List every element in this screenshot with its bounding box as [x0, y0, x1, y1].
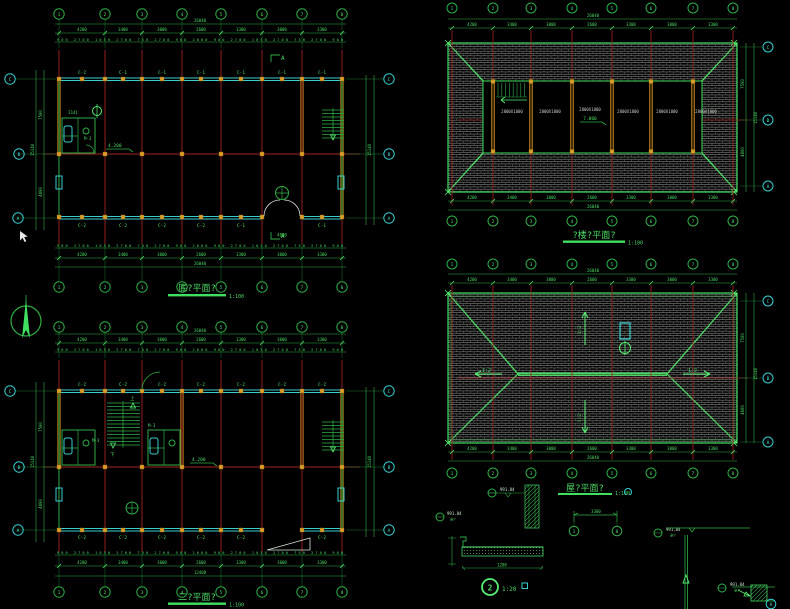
grid-bubble: 6 [650, 262, 653, 268]
grid-bubble: 3 [141, 325, 144, 331]
row-bubble: B [388, 465, 391, 471]
elevation-value: 991.84 [447, 511, 462, 516]
dim-bay: 2600 [587, 277, 597, 282]
window-label: C-2 [78, 535, 86, 541]
dim-v-overall: 15140 [30, 455, 35, 468]
grid-bubble: 5 [611, 6, 614, 12]
dim-sub-row: 900 2700 1050 2700 750 2700 900 2600 900… [57, 38, 343, 42]
grid-bubble: 1 [451, 262, 454, 268]
dim-sub-row: 900 2700 1050 2700 750 2700 900 2600 900… [57, 348, 343, 352]
grid-bubble: 5 [611, 471, 614, 477]
section-mark: A [281, 233, 285, 240]
dimension-lines [36, 24, 374, 267]
dim-bay: 3300 [708, 195, 718, 200]
key-elevation: 3300 1 8 [569, 509, 622, 536]
grid-bubble: 7 [692, 471, 695, 477]
window-label: C-2 [197, 535, 205, 541]
dim-overall-top: 26040 [587, 13, 600, 18]
dim-bay: 3300 [626, 446, 636, 451]
corner-detail: 991.84 全? A [718, 582, 776, 609]
row-bubble: B [767, 376, 770, 382]
dim-bay: 3300 [626, 195, 636, 200]
stair-up: 上 [130, 395, 135, 402]
window-label: C-1 [278, 70, 286, 76]
dim-bay: 3000 [277, 27, 287, 32]
level-text: 4.200 [108, 143, 122, 149]
grid-bubble: 4 [181, 325, 184, 331]
dim-bay: 3300 [236, 27, 246, 32]
dim-bay: 3300 [317, 337, 327, 342]
dim-bay: 2600 [587, 446, 597, 451]
dim-v-overall: 15140 [753, 111, 758, 124]
second-floor-plan: 26040 4200 3400 3000 2600 3300 3000 3300… [0, 310, 400, 609]
right-detail: 991.84 全? [654, 527, 750, 609]
grid-bubble: 7 [301, 590, 304, 596]
dim-bay: 3300 [236, 560, 246, 565]
plan-title: ?楼?平面? 1:100 [563, 229, 643, 247]
grid-bubble: 6 [261, 12, 264, 18]
window-labels: C-2 C-1 C-1 C-1 C-1 C-1 C-1 C-2 C-2 C-2 … [78, 70, 326, 229]
dim-bay: 3300 [708, 277, 718, 282]
grid-bubble: 5 [220, 325, 223, 331]
elevation-value: 991.84 [730, 582, 745, 587]
grid-bubble: 7 [301, 12, 304, 18]
room-label: 2800X1800 [501, 109, 523, 114]
grid-bubble: 4 [571, 262, 574, 268]
plan-scale: 1:100 [229, 603, 244, 609]
room-label: 2800X1800 [617, 109, 639, 114]
dim-bay: 3000 [546, 22, 556, 27]
dim-bay: 3000 [157, 252, 167, 257]
dim-bay: 3000 [546, 195, 556, 200]
walls [56, 77, 344, 219]
window-label: C-2 [318, 535, 326, 541]
dim-bay: 3300 [236, 252, 246, 257]
dim-bay: 3300 [708, 22, 718, 27]
dim-v-overall: 15140 [367, 455, 372, 468]
row-bubble: B [18, 152, 21, 158]
window-label: C-2 [197, 382, 205, 388]
dim-sub-row: 900 2700 1050 2700 750 2700 900 2600 900… [57, 244, 343, 248]
dim-overall-bottom: 26040 [587, 204, 600, 209]
dim-bay: 3400 [507, 277, 517, 282]
window-label: C-2 [237, 382, 245, 388]
dim-v-row: 4800 [740, 405, 745, 415]
dim-bay: 2600 [196, 560, 206, 565]
grid-bubble: 2 [492, 471, 495, 477]
dim-overall-top: 26040 [587, 268, 600, 273]
dim-v-overall: 15140 [30, 143, 35, 156]
dim-bay: 2600 [587, 195, 597, 200]
window-label: C-2 [78, 223, 86, 229]
grid-bubble: 8 [732, 262, 735, 268]
dim-bay: 3400 [118, 337, 128, 342]
cad-canvas: 26040 4200 3400 3000 2600 3300 3000 3300… [0, 0, 790, 609]
window-label: C-2 [119, 382, 127, 388]
dim-v-row: 4800 [38, 499, 43, 509]
grid-bubble: 5 [220, 285, 223, 291]
room-label: 2800X1800 [539, 109, 561, 114]
grid-bubble: 6 [261, 285, 264, 291]
slope-label: 1:2 [577, 414, 583, 422]
grid-bubble: 8 [341, 590, 344, 596]
dim-overall-bottom: 26040 [587, 455, 600, 460]
grid-bubble: 6 [261, 590, 264, 596]
grid-bubble: 5 [611, 219, 614, 225]
dim-v-row: 4800 [38, 187, 43, 197]
compass-needle [22, 299, 30, 338]
door-label: M-3 [92, 438, 100, 443]
window-label: C-1 [119, 70, 127, 76]
dim-bay: 3000 [667, 22, 677, 27]
window-label: C-1 [197, 70, 205, 76]
dim-bay: 3000 [277, 252, 287, 257]
dim-bay: 3000 [277, 560, 287, 565]
dim-bay: 4200 [77, 252, 87, 257]
grid-bubble: 1 [451, 471, 454, 477]
dim-overall-top: 26040 [194, 328, 207, 333]
grid-bubble: 1 [58, 590, 61, 596]
dim-bay: 4200 [77, 560, 87, 565]
room-label: 2800X1800 [695, 109, 717, 114]
dim-v-row: 7500 [38, 110, 43, 120]
grid-bubble: 6 [650, 219, 653, 225]
dim-overall-bottom: 12408 [194, 570, 207, 575]
plan-title-text: ?楼?平面? [572, 229, 615, 241]
dim-bay: 3000 [667, 195, 677, 200]
dim-bay: 3300 [626, 277, 636, 282]
row-bubble: C [388, 389, 391, 395]
key-dim: 3300 [591, 509, 601, 514]
grid-bubble: 6 [261, 325, 264, 331]
window-label: C-2 [119, 535, 127, 541]
grid-bubble: 5 [611, 262, 614, 268]
grid-bubble: 4 [571, 6, 574, 12]
grid-bubble: 1 [58, 325, 61, 331]
grid-bubble: 3 [530, 471, 533, 477]
grid-bubble: 4 [181, 12, 184, 18]
dim-bay: 3400 [507, 22, 517, 27]
grid-bubble: 4 [571, 471, 574, 477]
mouse-cursor [20, 231, 28, 242]
grid-bubble: 8 [341, 325, 344, 331]
row-bubble: B [388, 152, 391, 158]
dim-bay: 3000 [546, 277, 556, 282]
dim-bay: 3400 [118, 27, 128, 32]
row-bubble: A [388, 216, 391, 222]
detail-drawings: 991.84 991.84 全? 1200 2 1:20 3300 1 8 99… [430, 480, 790, 609]
dim-bay: 3000 [157, 27, 167, 32]
dim-v-row: 7500 [38, 422, 43, 432]
plan-title: 二?平面? 1:100 [168, 592, 244, 609]
window-label: C-2 [78, 70, 86, 76]
north-arrow [2, 293, 52, 353]
dim-bay: 3000 [667, 446, 677, 451]
grid-bubble: 6 [650, 471, 653, 477]
window-label: C-2 [197, 223, 205, 229]
plan-title-text: 二?平面? [178, 592, 216, 603]
row-bubble: C [767, 45, 770, 51]
slope-label: 1:2 [688, 368, 697, 374]
window-label: C-2 [119, 223, 127, 229]
window-label: C-2 [78, 382, 86, 388]
eave-detail: 991.84 991.84 全? 1200 2 1:20 [436, 485, 543, 595]
grid-bubble: 6 [650, 6, 653, 12]
row-bubble: A [767, 440, 770, 446]
grid-bubble: 8 [732, 219, 735, 225]
grid-lines [16, 19, 383, 281]
grid-bubble: 2 [104, 12, 107, 18]
grid-bubble: 1 [451, 219, 454, 225]
elevation-value: 991.84 [500, 487, 515, 492]
key-bubble: 1 [573, 529, 576, 535]
grid-bubble: 3 [141, 285, 144, 291]
plan-title-text: 底?平面? [178, 282, 216, 294]
row-bubble: A [17, 216, 20, 222]
grid-bubble: 3 [530, 262, 533, 268]
dim-overall-bottom: 26040 [194, 261, 207, 266]
grid-bubble: 8 [732, 471, 735, 477]
grid-bubble: 2 [492, 6, 495, 12]
grid-bubble: 7 [692, 219, 695, 225]
door-label: M-3 [84, 136, 92, 141]
dim-bay: 3000 [157, 337, 167, 342]
block-icon [522, 583, 528, 589]
dim-bay: 3300 [236, 337, 246, 342]
plan-scale: 1:100 [229, 294, 244, 300]
dim-bay: 4200 [77, 337, 87, 342]
dim-bay: 4200 [77, 27, 87, 32]
elevation-note: 全? [734, 588, 740, 593]
grid-bubble: 2 [492, 219, 495, 225]
grid-bubble: 7 [301, 325, 304, 331]
window-label: C-2 [158, 223, 166, 229]
grid-bubble: 1 [58, 285, 61, 291]
dim-bay: 2600 [196, 252, 206, 257]
dim-bay: 2600 [196, 337, 206, 342]
grid-bubble: 7 [692, 6, 695, 12]
row-bubble: B [767, 118, 770, 124]
window-label: C-2 [158, 535, 166, 541]
dim-bay: 3000 [667, 277, 677, 282]
dim-bay: 4200 [467, 22, 477, 27]
row-bubble: A [17, 528, 20, 534]
window-label: C-2 [318, 382, 326, 388]
grid-bubble: 3 [530, 6, 533, 12]
dim-bay: 4200 [467, 446, 477, 451]
grid-bubble: 7 [301, 285, 304, 291]
dim-bay: 3000 [546, 446, 556, 451]
detail-bubble-number: 2 [488, 584, 493, 593]
dim-v-row: 7500 [740, 333, 745, 343]
grid-bubble: 8 [732, 6, 735, 12]
dim-v-overall: 15140 [367, 143, 372, 156]
dim-bay: 3400 [118, 560, 128, 565]
plan-title: 底?平面? 1:100 [168, 282, 244, 300]
ground-floor-plan: 26040 4200 3400 3000 2600 3300 3000 3300… [0, 0, 400, 310]
room-label: 2800X1800 [579, 107, 601, 112]
bath-dim: 2141 [68, 110, 78, 115]
dim-bay: 4200 [467, 277, 477, 282]
grid-bubble: 4 [571, 219, 574, 225]
row-bubble: B [18, 465, 21, 471]
room-label: 2800X1800 [656, 109, 678, 114]
grid-bubble: 5 [220, 12, 223, 18]
grid-bubble: 2 [492, 262, 495, 268]
dim-bay: 3300 [626, 22, 636, 27]
grid-bubble: 7 [692, 262, 695, 268]
row-bubble: A [388, 528, 391, 534]
key-bubble: 8 [616, 529, 619, 535]
window-label: C-2 [278, 382, 286, 388]
row-bubble: C [388, 77, 391, 83]
row-bubble: C [9, 77, 12, 83]
level-text: 7.000 [583, 116, 597, 122]
detail-dim: 1200 [497, 563, 507, 568]
grid-bubble: 2 [104, 590, 107, 596]
attic-rooms: 2800X1800 2800X1800 2800X1800 2800X1800 … [483, 80, 717, 154]
slope-label: 1:2 [482, 368, 491, 374]
grid-bubble: 8 [341, 12, 344, 18]
level-text: 4.200 [192, 457, 206, 463]
dim-bay: 3300 [317, 560, 327, 565]
stair-down: 下 [110, 452, 115, 458]
window-label: C-1 [318, 223, 326, 229]
window-label: C-2 [237, 535, 245, 541]
row-bubble: C [9, 389, 12, 395]
dim-bay: 3400 [118, 252, 128, 257]
grid-bubble: 8 [341, 285, 344, 291]
grid-bubble: 3 [530, 219, 533, 225]
grid-bubble: 5 [220, 590, 223, 596]
dim-bay: 3400 [507, 446, 517, 451]
attic-plan: 2800X1800 2800X1800 2800X1800 2800X1800 … [430, 0, 790, 250]
grid-bubble: 3 [141, 12, 144, 18]
elevation-note: 全? [670, 533, 676, 538]
dim-bay: 3000 [277, 337, 287, 342]
detail-scale: 1:20 [502, 586, 517, 593]
window-label: C-1 [158, 70, 166, 76]
door-label: M-3 [148, 423, 156, 428]
dim-bay: 3300 [317, 27, 327, 32]
dim-bay: 3400 [507, 195, 517, 200]
window-label: C-1 [237, 223, 245, 229]
dim-bay: 4200 [467, 195, 477, 200]
dim-sub-row: 900 2700 1050 2700 750 2700 900 2600 900… [57, 551, 343, 555]
dim-v-row: 7500 [740, 79, 745, 89]
dim-bay: 3000 [157, 560, 167, 565]
window-label: C-1 [318, 70, 326, 76]
grid-bubble: 3 [141, 590, 144, 596]
grid-bubble: 2 [104, 285, 107, 291]
dim-bay: 3300 [317, 252, 327, 257]
plan-scale: 1:100 [628, 241, 643, 247]
elevation-note: 全? [450, 517, 456, 522]
dim-bay: 3300 [708, 446, 718, 451]
dim-bay: 2600 [196, 27, 206, 32]
section-bubble-letter: A [770, 602, 773, 608]
grid-bubble: 2 [104, 325, 107, 331]
window-label: C-2 [158, 382, 166, 388]
slope-label: 1:2 [577, 326, 583, 334]
window-label: C-1 [237, 70, 245, 76]
grid-bubbles: 1 2 3 4 5 6 7 8 1 2 3 4 5 6 7 8 C B A C … [5, 9, 394, 292]
row-bubble: A [767, 184, 770, 190]
grid-bubble: 1 [451, 6, 454, 12]
row-bubble: C [767, 299, 770, 305]
dim-overall-top: 26040 [194, 18, 207, 23]
dim-bay: 2600 [587, 22, 597, 27]
dim-v-row: 4800 [740, 147, 745, 157]
section-mark: A [281, 55, 285, 62]
grid-bubble: 1 [58, 12, 61, 18]
roof-plan: 1:2 1:2 1:2 1:2 26040 4200 3400 3000 260… [430, 250, 790, 495]
